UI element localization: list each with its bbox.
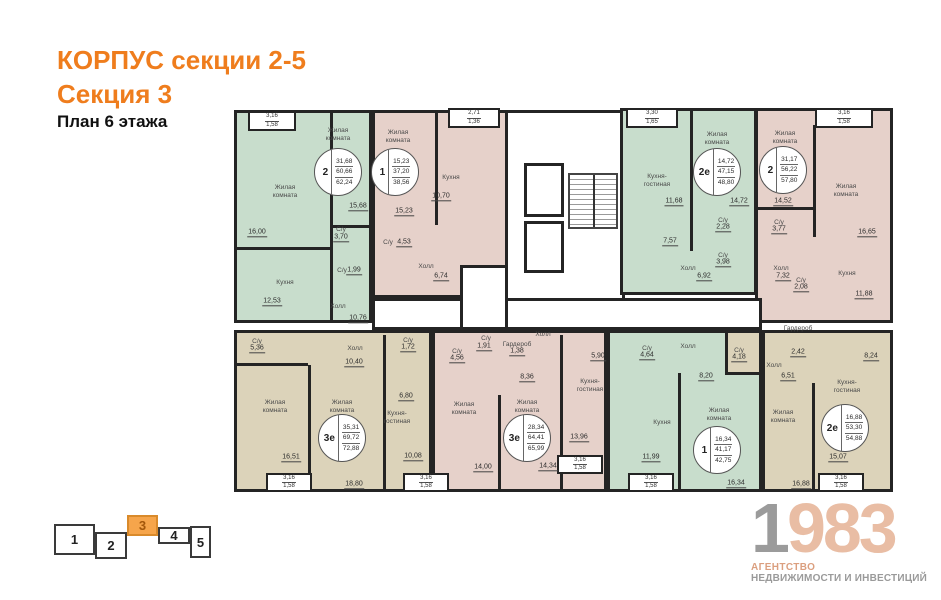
interior-wall [678, 373, 681, 492]
interior-wall [755, 207, 815, 210]
balcony-area-value: 3,16 [573, 457, 587, 466]
apartment-stats-badge[interactable]: 231,6860,6662,24 [314, 148, 362, 196]
apartment-rooms-count: 3е [509, 415, 524, 461]
room-label: Холл [766, 362, 781, 370]
room-label: Кухня [442, 174, 459, 182]
balcony: 3,161,58 [248, 111, 296, 131]
apartment-area-value: 37,20 [392, 167, 410, 177]
room-area-value: 6,80 [398, 392, 414, 401]
room-label: Жилая комната [834, 183, 859, 199]
interior-wall [690, 111, 693, 251]
room-area-value: 10,40 [344, 358, 364, 367]
apartment-rooms-count: 2е [699, 149, 714, 195]
room-label: Жилая комната [273, 184, 298, 200]
room-area-value: 1,91 [476, 342, 492, 351]
apartment-area-value: 15,23 [392, 157, 410, 167]
balcony-area-value: 1,65 [645, 119, 659, 127]
room-label: Кухня- гостиная [644, 173, 670, 189]
room-area-value: 5,90 [590, 352, 606, 361]
apartment-stats-badge[interactable]: 3е35,3169,7272,88 [318, 414, 366, 462]
room-area-value: 4,56 [449, 354, 465, 363]
room-label: Жилая комната [330, 399, 355, 415]
apartment-rooms-count: 2е [827, 405, 842, 451]
apartment-stats-badge[interactable]: 115,2337,2038,56 [371, 148, 419, 196]
balcony: 3,301,65 [626, 108, 678, 128]
apartment-area-value: 53,30 [845, 423, 863, 433]
room-label: Жилая комната [707, 407, 732, 423]
room-area-value: 8,24 [863, 352, 879, 361]
room-label: Жилая комната [386, 129, 411, 145]
apartment-areas: 35,3169,7272,88 [342, 423, 360, 453]
balcony-area-value: 3,16 [644, 475, 658, 484]
room-area-value: 6,51 [780, 372, 796, 381]
room-area-value: 4,18 [731, 353, 747, 362]
balcony: 3,161,58 [815, 108, 873, 128]
apartment-2-rooms-top-left[interactable] [234, 110, 372, 323]
apartment-area-value: 16,88 [845, 413, 863, 423]
balcony-area-value: 2,71 [467, 110, 481, 119]
room-area-value: 16,34 [726, 479, 746, 488]
apartment-stats-badge[interactable]: 2е16,8853,3054,88 [821, 404, 869, 452]
room-area-value: 4,53 [396, 238, 412, 247]
balcony: 2,711,36 [448, 108, 500, 128]
room-area-value: 14,72 [729, 197, 749, 206]
apartment-area-value: 56,22 [780, 165, 798, 175]
room-label: Кухня- гостиная [577, 378, 603, 394]
apartment-stats-badge[interactable]: 231,1756,2257,80 [759, 146, 807, 194]
room-area-value: 11,68 [665, 197, 684, 206]
room-area-value: 11,88 [855, 290, 874, 299]
section-map-item-2[interactable]: 2 [95, 532, 127, 559]
interior-wall [435, 113, 438, 225]
room-label: Гардероб [784, 325, 813, 333]
room-area-value: 11,99 [642, 453, 661, 462]
balcony-area-value: 3,16 [282, 475, 296, 484]
room-label: Жилая комната [771, 409, 796, 425]
balcony-area-value: 3,16 [265, 113, 279, 122]
apartment-rooms-count: 2 [768, 147, 778, 193]
balcony: 3,161,58 [628, 473, 674, 492]
room-label: Холл [535, 331, 550, 339]
apartment-area-value: 62,24 [335, 178, 353, 187]
section-map-item-5[interactable]: 5 [190, 526, 211, 558]
room-area-value: 14,00 [473, 463, 493, 472]
room-label: Холл [418, 263, 433, 271]
apartment-areas: 15,2337,2038,56 [392, 157, 410, 187]
staircase [568, 173, 618, 229]
room-label: Холл [347, 345, 362, 353]
apartment-area-value: 31,68 [335, 157, 353, 167]
room-area-value: 8,36 [519, 373, 535, 382]
apartment-area-value: 47,15 [717, 167, 735, 177]
room-area-value: 7,32 [775, 272, 791, 281]
balcony-area-value: 1,36 [467, 119, 481, 127]
room-area-value: 2,08 [793, 283, 809, 292]
room-area-value: 16,00 [247, 228, 267, 237]
apartment-area-value: 54,88 [845, 434, 863, 443]
room-label: Кухня [838, 270, 855, 278]
balcony-area-value: 3,30 [645, 110, 659, 119]
room-area-value: 6,92 [696, 272, 712, 281]
room-area-value: 15,23 [394, 207, 414, 216]
room-area-value: 1,38 [509, 347, 525, 356]
room-label: Холл [680, 265, 695, 273]
section-map-item-4[interactable]: 4 [158, 527, 190, 544]
logo-year: 1983 [751, 496, 937, 560]
room-label: Кухня [276, 279, 293, 287]
room-label: Жилая комната [705, 131, 730, 147]
room-area-value: 14,34 [538, 462, 558, 471]
corridor [372, 298, 762, 330]
balcony-area-value: 1,58 [265, 122, 279, 130]
room-area-value: 13,96 [569, 433, 589, 442]
room-area-value: 15,68 [348, 202, 368, 211]
elevator-shaft [524, 221, 564, 273]
apartment-areas: 14,7247,1548,80 [717, 157, 735, 187]
apartment-areas: 31,6860,6662,24 [335, 157, 353, 187]
apartment-rooms-count: 2 [323, 149, 333, 195]
logo-tagline-2: НЕДВИЖИМОСТИ И ИНВЕСТИЦИЙ [751, 573, 937, 584]
room-area-value: 18,80 [344, 480, 364, 489]
room-area-value: 5,36 [249, 344, 265, 353]
balcony-area-value: 3,16 [834, 475, 848, 484]
apartment-rooms-count: 1 [702, 427, 712, 473]
apartment-area-value: 48,80 [717, 178, 735, 187]
room-area-value: 14,52 [773, 197, 793, 206]
apartment-areas: 16,3441,1742,75 [714, 435, 732, 465]
room-label: Холл [680, 343, 695, 351]
apartment-areas: 16,8853,3054,88 [845, 413, 863, 443]
apartment-stats-badge[interactable]: 116,3441,1742,75 [693, 426, 741, 474]
core-vestibule [460, 265, 508, 330]
room-area-value: 8,20 [698, 372, 714, 381]
apartment-rooms-count: 3е [324, 415, 339, 461]
apartment-area-value: 14,72 [717, 157, 735, 167]
interior-wall [234, 363, 308, 366]
balcony-area-value: 1,58 [837, 119, 851, 127]
interior-wall [234, 247, 332, 250]
apartment-rooms-count: 1 [380, 149, 390, 195]
balcony-area-value: 1,58 [573, 465, 587, 473]
apartment-stats-badge[interactable]: 3е28,3464,4165,99 [503, 414, 551, 462]
apartment-area-value: 42,75 [714, 456, 732, 465]
room-area-value: 10,08 [403, 452, 423, 461]
room-label: Холл [330, 303, 345, 311]
room-area-value: 12,53 [262, 297, 282, 306]
balcony-area-value: 3,16 [837, 110, 851, 119]
room-area-value: 1,99 [346, 266, 362, 275]
room-area-value: 7,57 [662, 237, 678, 246]
balcony-area-value: 1,58 [419, 483, 433, 491]
apartment-area-value: 60,66 [335, 167, 353, 177]
balcony-area-value: 1,58 [282, 483, 296, 491]
room-area-value: 16,51 [281, 453, 301, 462]
room-area-value: 10,70 [431, 192, 451, 201]
balcony-area-value: 3,16 [419, 475, 433, 484]
room-label: С/у [383, 239, 393, 247]
room-area-value: 3,70 [333, 233, 349, 242]
apartment-areas: 28,3464,4165,99 [527, 423, 545, 453]
elevator-shaft [524, 163, 564, 217]
apartment-area-value: 31,17 [780, 155, 798, 165]
room-label: Жилая комната [515, 399, 540, 415]
room-area-value: 3,77 [771, 225, 787, 234]
room-label: Кухня- гостиная [834, 379, 860, 395]
room-label: Кухня [653, 419, 670, 427]
room-area-value: 16,65 [857, 228, 877, 237]
room-area-value: 2,28 [715, 223, 731, 232]
apartment-area-value: 41,17 [714, 445, 732, 455]
apartment-area-value: 16,34 [714, 435, 732, 445]
interior-wall [813, 125, 816, 237]
apartment-area-value: 35,31 [342, 423, 360, 433]
room-area-value: 4,64 [639, 351, 655, 360]
room-label: Жилая комната [773, 130, 798, 146]
apartment-area-value: 65,99 [527, 444, 545, 453]
room-area-value: 3,98 [715, 258, 731, 267]
apartment-area-value: 69,72 [342, 433, 360, 443]
room-label: Жилая комната [326, 127, 351, 143]
room-area-value: 15,07 [828, 453, 848, 462]
balcony: 3,161,58 [403, 473, 449, 492]
apartment-area-value: 57,80 [780, 176, 798, 185]
apartment-area-value: 38,56 [392, 178, 410, 187]
interior-wall [812, 383, 815, 492]
apartment-areas: 31,1756,2257,80 [780, 155, 798, 185]
agency-logo: 1983 АГЕНТСТВО НЕДВИЖИМОСТИ И ИНВЕСТИЦИЙ [751, 496, 937, 584]
room-label: Кухня- гостиная [384, 410, 410, 426]
room-area-value: 2,42 [790, 348, 806, 357]
section-map-item-1[interactable]: 1 [54, 524, 95, 555]
section-map-item-3[interactable]: 3 [127, 515, 158, 536]
room-area-value: 1,72 [400, 343, 416, 352]
apartment-area-value: 28,34 [527, 423, 545, 433]
balcony-area-value: 1,58 [644, 483, 658, 491]
balcony: 3,161,58 [266, 473, 312, 492]
balcony: 3,161,58 [557, 455, 603, 474]
staircase-divider [593, 175, 595, 227]
page-title: КОРПУС секции 2-5 [57, 44, 306, 78]
apartment-area-value: 72,88 [342, 444, 360, 453]
interior-wall [498, 395, 501, 492]
room-label: Жилая комната [452, 401, 477, 417]
room-area-value: 10,76 [348, 314, 368, 323]
room-area-value: 6,74 [433, 272, 449, 281]
apartment-area-value: 64,41 [527, 433, 545, 443]
floor-plan: 3,161,582,711,363,301,653,161,583,161,58… [230, 95, 895, 503]
apartment-stats-badge[interactable]: 2е14,7247,1548,80 [693, 148, 741, 196]
room-label: Жилая комната [263, 399, 288, 415]
